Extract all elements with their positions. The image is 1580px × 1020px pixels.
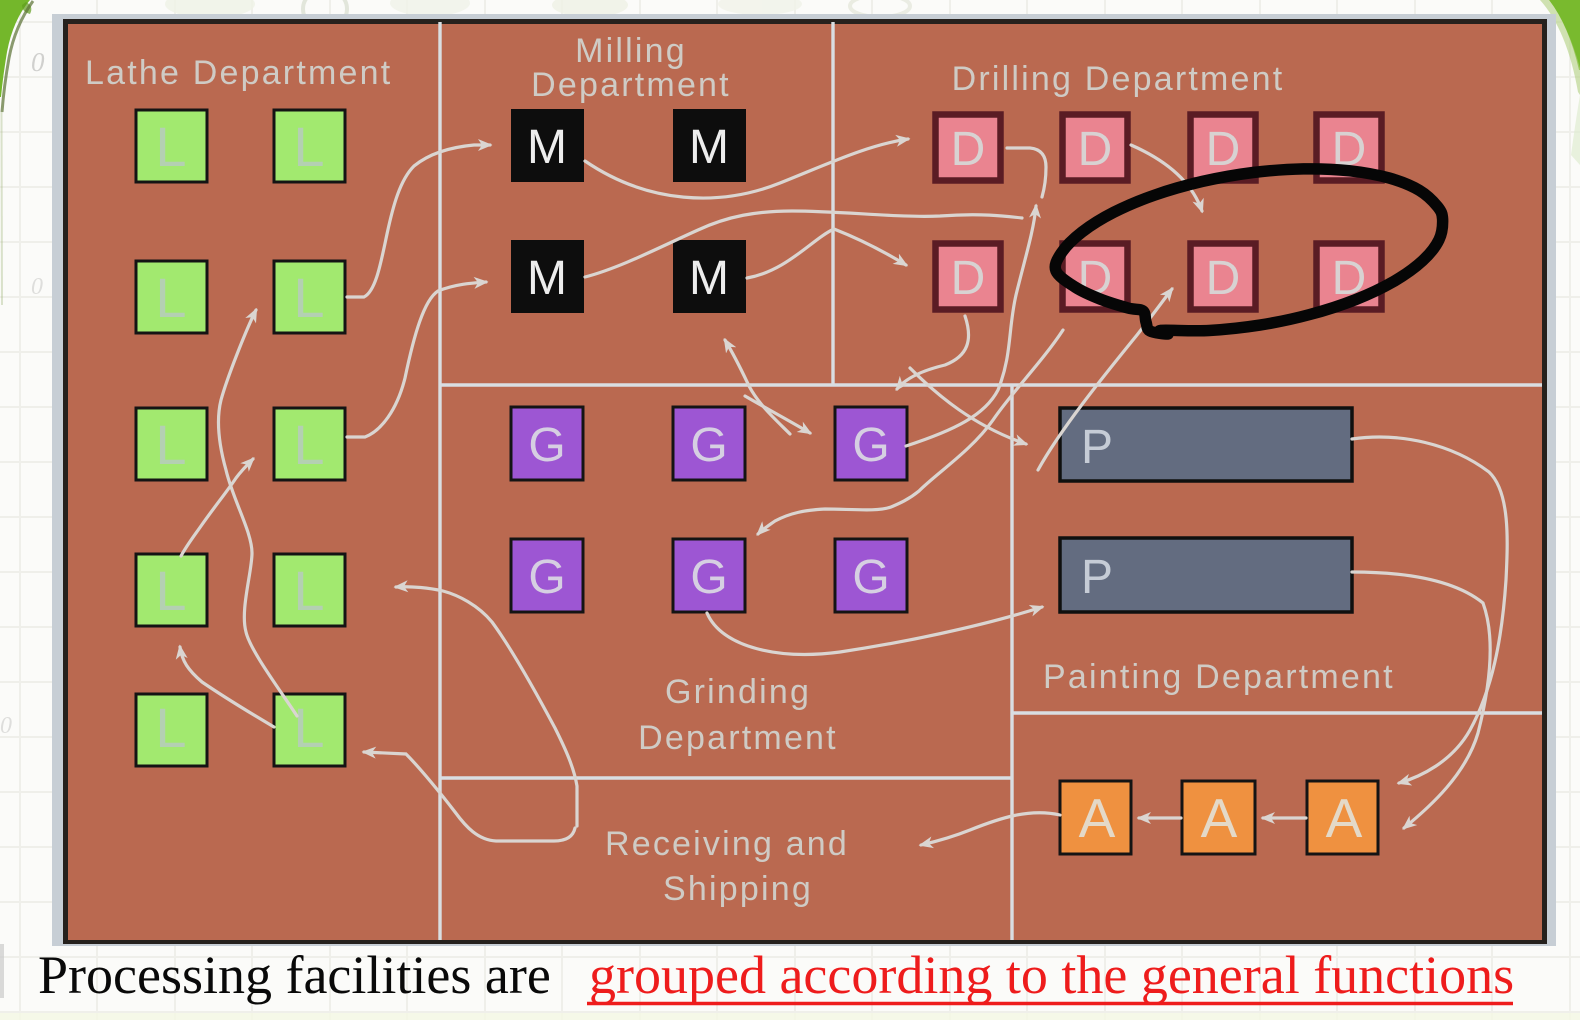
svg-text:Painting Department: Painting Department xyxy=(1043,658,1395,696)
svg-text:M: M xyxy=(689,121,729,174)
svg-text:Shipping: Shipping xyxy=(663,870,813,908)
svg-text:D: D xyxy=(951,123,986,176)
svg-text:L: L xyxy=(293,559,324,622)
svg-text:L: L xyxy=(293,696,324,759)
svg-text:L: L xyxy=(155,696,186,759)
svg-text:G: G xyxy=(690,551,727,604)
svg-text:Receiving and: Receiving and xyxy=(605,825,849,863)
svg-text:P: P xyxy=(1081,421,1113,474)
svg-text:Lathe Department: Lathe Department xyxy=(85,54,392,92)
svg-text:G: G xyxy=(690,419,727,472)
svg-text:D: D xyxy=(1206,123,1241,176)
svg-text:G: G xyxy=(528,419,565,472)
svg-text:L: L xyxy=(293,115,324,178)
svg-text:D: D xyxy=(1206,252,1241,305)
svg-text:Department: Department xyxy=(531,66,731,104)
svg-text:Grinding: Grinding xyxy=(665,673,811,711)
svg-text:grouped according to the gener: grouped according to the general functio… xyxy=(589,945,1514,1005)
svg-text:A: A xyxy=(1326,787,1363,849)
svg-text:L: L xyxy=(293,413,324,476)
svg-text:Department: Department xyxy=(638,719,838,757)
svg-text:D: D xyxy=(1078,123,1113,176)
svg-text:0: 0 xyxy=(31,274,43,300)
svg-text:A: A xyxy=(1201,787,1238,849)
svg-text:A: A xyxy=(1079,787,1116,849)
svg-text:P: P xyxy=(1081,551,1113,604)
svg-text:L: L xyxy=(155,413,186,476)
svg-text:D: D xyxy=(951,252,986,305)
svg-text:Processing facilities are: Processing facilities are xyxy=(38,945,551,1005)
svg-text:L: L xyxy=(155,266,186,329)
svg-text:Drilling Department: Drilling Department xyxy=(952,60,1285,98)
svg-text:0: 0 xyxy=(0,713,12,739)
svg-text:G: G xyxy=(852,419,889,472)
svg-text:G: G xyxy=(528,551,565,604)
svg-text:L: L xyxy=(293,266,324,329)
svg-text:M: M xyxy=(689,252,729,305)
svg-text:0: 0 xyxy=(31,47,45,77)
svg-text:L: L xyxy=(155,115,186,178)
svg-text:M: M xyxy=(527,121,567,174)
svg-text:M: M xyxy=(527,252,567,305)
svg-text:Milling: Milling xyxy=(575,32,687,70)
svg-text:L: L xyxy=(155,559,186,622)
svg-text:G: G xyxy=(852,551,889,604)
